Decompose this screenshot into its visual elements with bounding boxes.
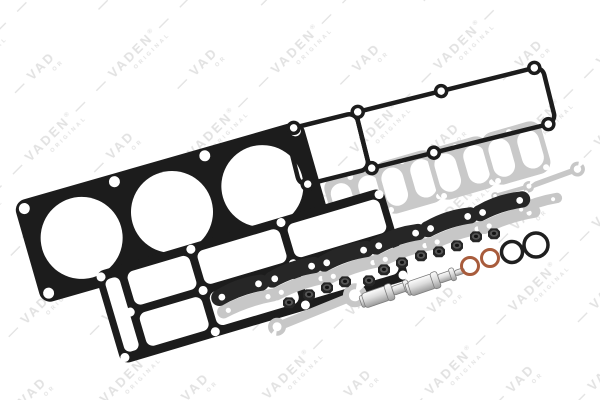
flange-nut xyxy=(470,231,482,242)
flange-nut xyxy=(378,264,390,275)
flange-nut xyxy=(451,240,463,251)
flange-nut xyxy=(339,276,351,287)
flange-nut xyxy=(303,289,315,300)
flange-nut xyxy=(433,246,445,257)
flange-nut xyxy=(321,282,333,293)
flange-nut xyxy=(415,250,427,261)
flange-nut xyxy=(283,297,295,308)
flange-nut xyxy=(396,257,408,268)
flange-nut xyxy=(488,228,500,239)
parts-kit-illustration: —VADEN®— ORIGINAL —VADEN®— ORIGINAL xyxy=(0,0,600,400)
flange-nut xyxy=(363,275,375,286)
product-photo: —VADEN®— ORIGINAL —VADEN®— ORIGINAL xyxy=(0,0,600,400)
